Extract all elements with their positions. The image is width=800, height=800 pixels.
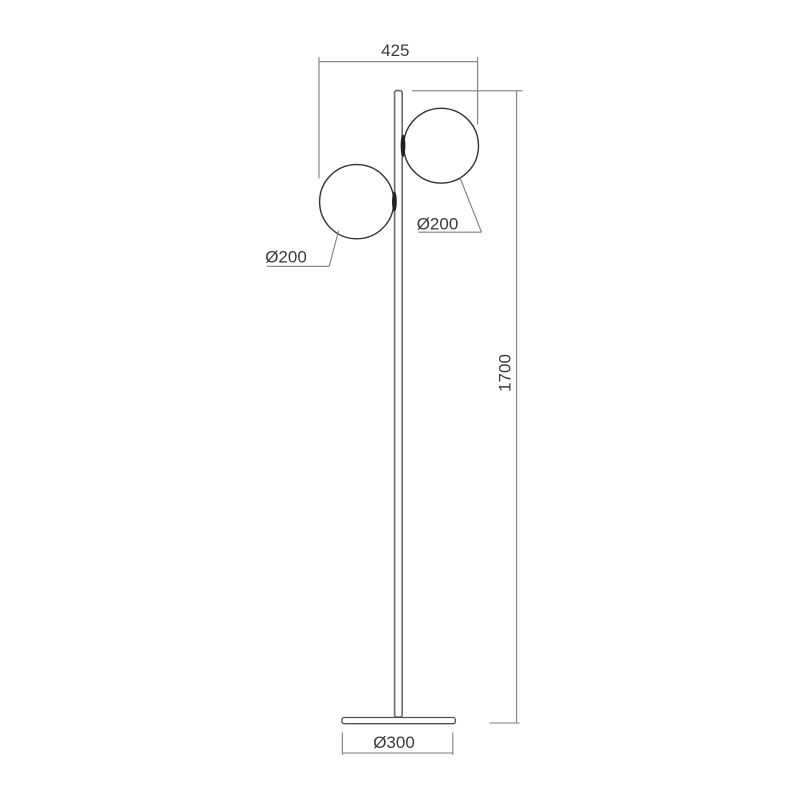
- svg-text:Ø200: Ø200: [417, 215, 459, 234]
- svg-text:425: 425: [381, 41, 409, 60]
- svg-text:Ø300: Ø300: [373, 733, 415, 752]
- svg-text:1700: 1700: [496, 354, 515, 392]
- svg-text:Ø200: Ø200: [265, 247, 307, 266]
